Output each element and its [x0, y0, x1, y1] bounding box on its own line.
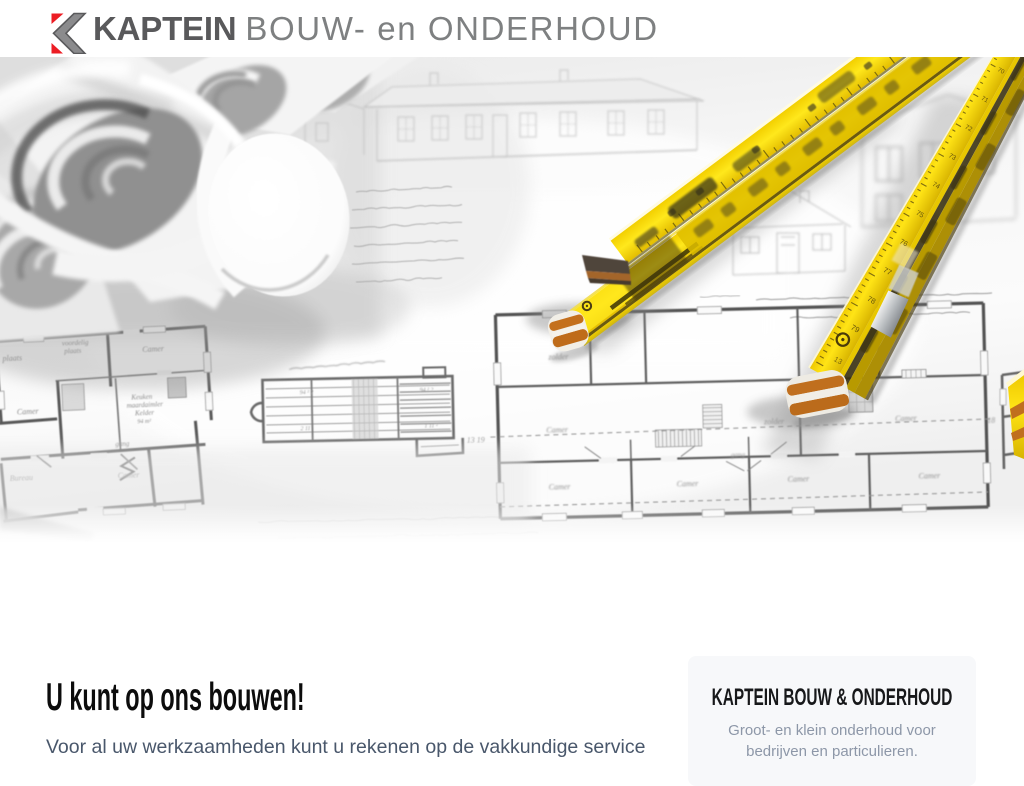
svg-text:1 11 ²: 1 11 ²: [424, 423, 438, 429]
svg-text:94 ² 2: 94 ² 2: [300, 389, 314, 396]
svg-text:13 19: 13 19: [467, 435, 485, 444]
svg-text:Camer: Camer: [677, 479, 700, 489]
svg-text:94 m²: 94 m²: [137, 418, 151, 426]
svg-text:Camer: Camer: [17, 407, 40, 417]
svg-text:94 ² 2: 94 ² 2: [420, 386, 434, 393]
svg-text:2 11: 2 11: [300, 426, 310, 432]
svg-text:Kelder: Kelder: [134, 409, 155, 418]
svg-text:Camer: Camer: [787, 474, 810, 484]
svg-text:18: 18: [987, 416, 995, 425]
svg-text:gang: gang: [731, 451, 746, 459]
svg-text:Camer: Camer: [549, 482, 572, 492]
svg-text:Camer: Camer: [918, 471, 941, 481]
svg-text:Camer: Camer: [895, 414, 918, 424]
svg-text:Camer: Camer: [546, 425, 569, 435]
